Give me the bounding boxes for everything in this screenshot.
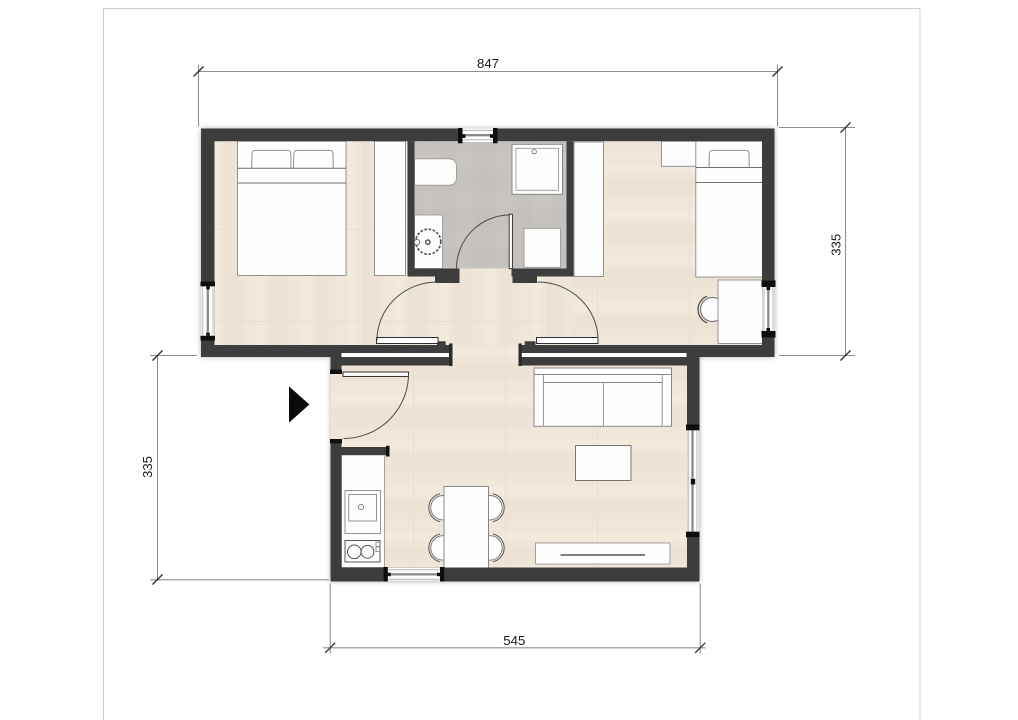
svg-text:335: 335 — [829, 234, 844, 256]
svg-text:545: 545 — [503, 633, 525, 648]
svg-text:335: 335 — [140, 456, 155, 478]
svg-text:847: 847 — [477, 56, 499, 71]
